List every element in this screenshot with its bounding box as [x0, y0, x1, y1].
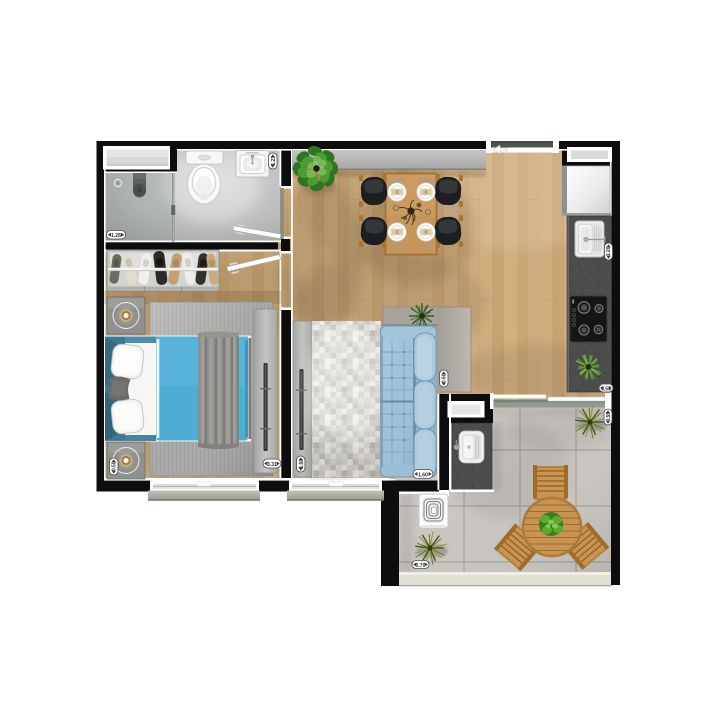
svg-text:0.55: 0.55	[601, 386, 611, 392]
svg-text:1.28: 1.28	[111, 233, 121, 239]
svg-text:1.20: 1.20	[606, 246, 612, 256]
svg-text:1.60: 1.60	[418, 472, 428, 478]
svg-text:0.50: 0.50	[111, 461, 117, 471]
svg-text:0.55: 0.55	[606, 412, 612, 422]
svg-text:1.23: 1.23	[271, 156, 277, 166]
svg-text:0.70: 0.70	[416, 563, 426, 569]
svg-text:0.60: 0.60	[441, 373, 447, 383]
svg-text:3.31: 3.31	[267, 462, 277, 468]
